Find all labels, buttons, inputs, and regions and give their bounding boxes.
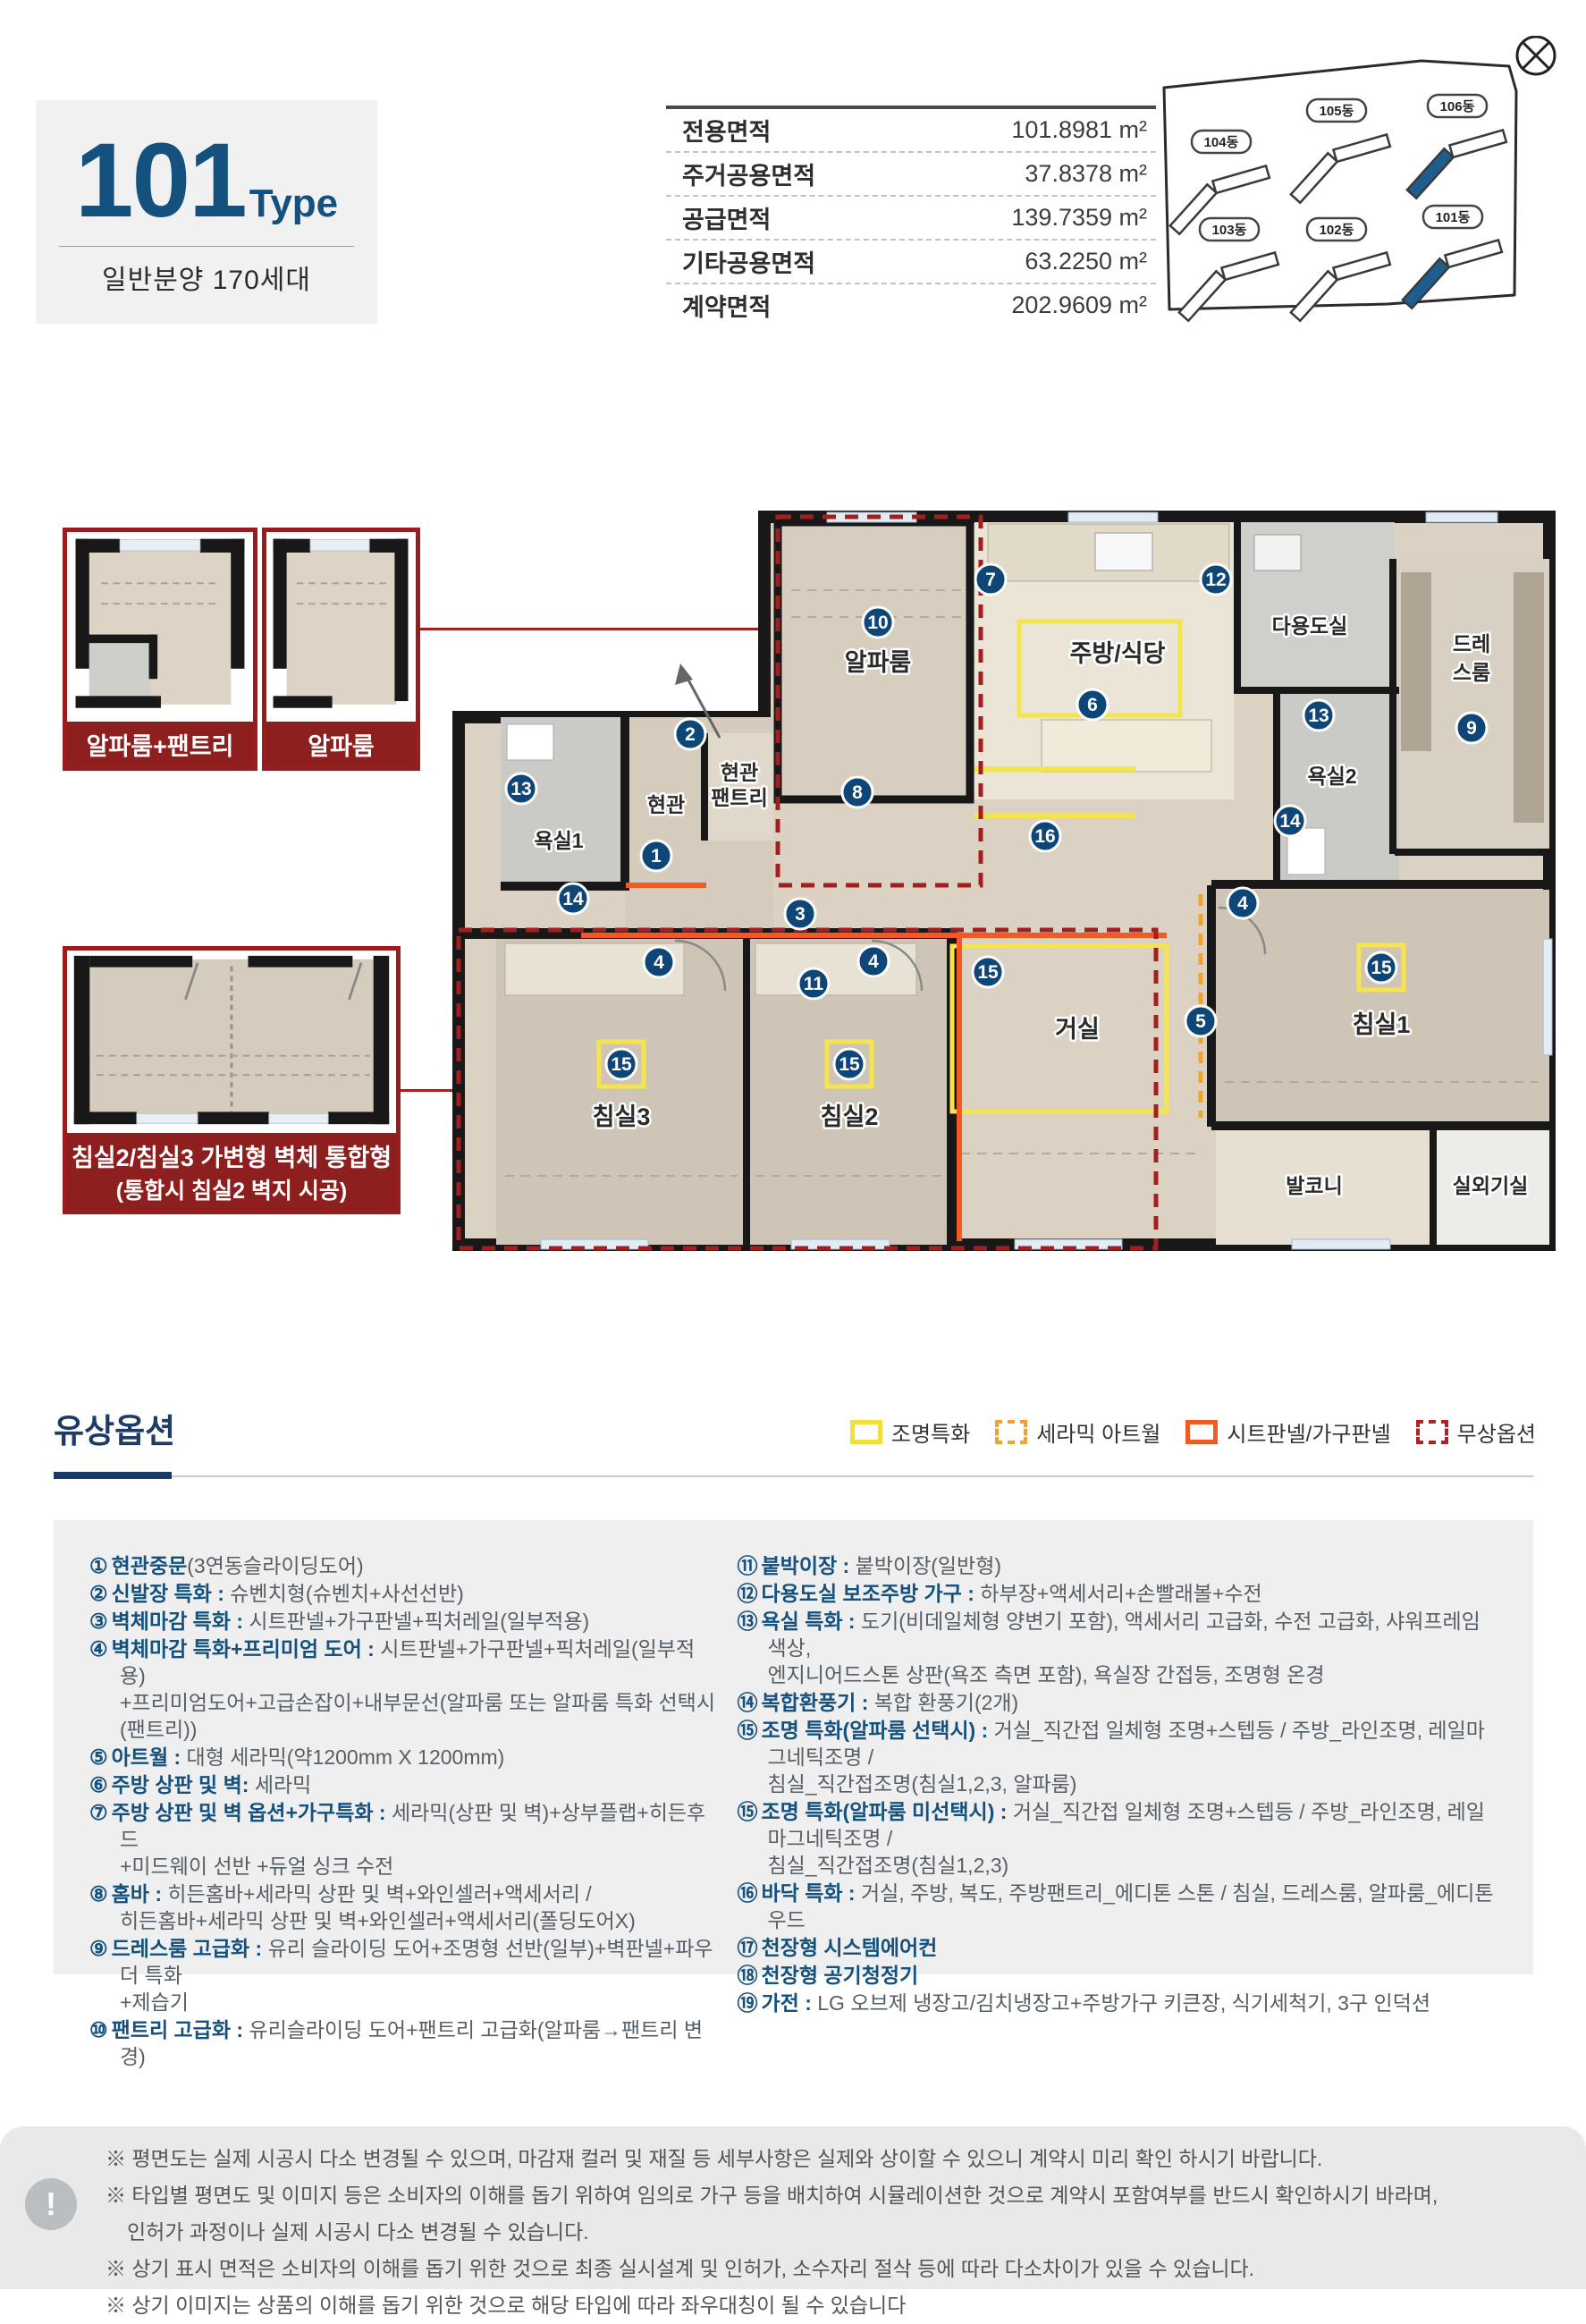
disclaimer-line: ※ 타입별 평면도 및 이미지 등은 소비자의 이해를 돕기 위하여 임의로 가…	[105, 2177, 1438, 2214]
svg-text:15: 15	[611, 1054, 632, 1075]
option-marker-10: 10	[863, 607, 893, 638]
building-label: 104동	[1204, 135, 1239, 150]
option-marker-14: 14	[1275, 806, 1305, 836]
building-label: 106동	[1440, 99, 1475, 114]
option-item: ⑯바닥 특화 : 거실, 주방, 복도, 주방팬트리_에디톤 스톤 / 침실, …	[738, 1880, 1498, 1933]
legend-item: 시트판넬/가구판넬	[1185, 1416, 1390, 1448]
paid-options-panel: ①현관중문(3연동슬라이딩도어) ②신발장 특화 : 슈벤치형(슈벤치+사선선반…	[54, 1520, 1533, 1974]
table-row: 기타공용면적 63.2250 m²	[666, 241, 1156, 284]
dressroom-wardrobe	[1401, 572, 1431, 751]
alert-icon: !	[25, 2178, 77, 2230]
variant-bed2-bed3-combined: 침실2/침실3 가변형 벽체 통합형 (통합시 침실2 벽지 시공)	[63, 946, 401, 1214]
table-row: 전용면적 101.8981 m²	[666, 109, 1156, 153]
area-label: 전용면적	[682, 113, 771, 148]
room-label-outdoor-unit: 실외기실	[1453, 1174, 1529, 1197]
option-marker-5: 5	[1185, 1006, 1216, 1036]
disclaimer-notes: ※ 평면도는 실제 시공시 다소 변경될 수 있으며, 마감재 컬러 및 재질 …	[105, 2141, 1438, 2324]
option-item: ⑥주방 상판 및 벽: 세라믹	[89, 1771, 720, 1798]
area-value: 63.2250 m²	[1025, 248, 1147, 275]
option-marker-13: 13	[1303, 700, 1334, 731]
option-item: ①현관중문(3연동슬라이딩도어)	[89, 1552, 720, 1579]
area-value: 101.8981 m²	[1011, 116, 1147, 144]
room-label-dressroom: 드레	[1453, 632, 1490, 655]
legend-item: 세라믹 아트월	[995, 1416, 1160, 1448]
legend-label: 세라믹 아트월	[1036, 1416, 1160, 1448]
option-marker-16: 16	[1030, 821, 1060, 851]
variant-caption: 알파룸	[266, 722, 416, 766]
unit-type-suffix: Type	[249, 182, 338, 226]
option-marker-14: 14	[558, 883, 588, 914]
building-label: 105동	[1320, 104, 1354, 119]
unit-type-card: 101 Type 일반분양 170세대	[36, 100, 377, 324]
option-item: ⑫다용도실 보조주방 가구 : 하부장+액세서리+손빨래볼+수전	[738, 1580, 1498, 1607]
variant-sketch	[67, 951, 396, 1133]
option-item: ⑭복합환풍기 : 복합 환풍기(2개)	[738, 1689, 1498, 1716]
room-label-utility: 다용도실	[1272, 614, 1348, 638]
option-marker-15: 15	[973, 957, 1003, 987]
room-label-alpha: 알파룸	[845, 649, 912, 676]
unit-type-number: 101	[75, 128, 246, 233]
option-item: ⑩팬트리 고급화 : 유리슬라이딩 도어+팬트리 고급화(알파룸→팬트리 변경)	[89, 2016, 720, 2070]
svg-text:1: 1	[651, 846, 662, 866]
option-item: ⑬욕실 특화 : 도기(비데일체형 양변기 포함), 액세서리 고급화, 수전 …	[738, 1608, 1498, 1688]
svg-text:9: 9	[1466, 718, 1477, 739]
area-label: 기타공용면적	[682, 244, 815, 279]
building-label: 102동	[1320, 223, 1354, 238]
disclaimer-line: 인허가 과정이나 실제 시공시 다소 변경될 수 있습니다.	[105, 2214, 1438, 2251]
divider	[54, 1475, 1533, 1477]
variant-alpha: 알파룸	[262, 528, 420, 771]
table-row: 계약면적 202.9609 m²	[666, 284, 1156, 326]
svg-text:5: 5	[1195, 1011, 1206, 1032]
area-value: 139.7359 m²	[1011, 204, 1147, 232]
area-table: 전용면적 101.8981 m² 주거공용면적 37.8378 m² 공급면적 …	[666, 106, 1156, 326]
variant-sketch	[266, 532, 416, 722]
area-label: 주거공용면적	[682, 156, 815, 191]
legend-label: 시트판넬/가구판넬	[1227, 1416, 1390, 1448]
svg-text:14: 14	[562, 889, 584, 909]
bed2-wardrobe	[755, 943, 916, 995]
unit-type-title: 101 Type	[75, 128, 338, 233]
legend-label: 조명특화	[891, 1416, 970, 1448]
floorplan-brochure-page: { "header": { "type_number": "101", "typ…	[0, 0, 1586, 2289]
svg-text:15: 15	[977, 962, 999, 983]
room-label-bath2: 욕실2	[1307, 765, 1356, 788]
option-item: ⑨드레스룸 고급화 : 유리 슬라이딩 도어+조명형 선반(일부)+벽판넬+파우…	[89, 1935, 720, 2016]
table-row: 공급면적 139.7359 m²	[666, 197, 1156, 241]
sale-units-subtitle: 일반분양 170세대	[102, 258, 311, 297]
svg-text:2: 2	[685, 724, 696, 745]
svg-text:15: 15	[839, 1054, 860, 1075]
room-label-entry-pantry: 팬트리	[711, 786, 767, 809]
option-item: ⑤아트월 : 대형 세라믹(약1200mm X 1200mm)	[89, 1744, 720, 1770]
legend-label: 무상옵션	[1457, 1416, 1536, 1448]
svg-text:10: 10	[867, 613, 888, 633]
option-marker-4: 4	[1227, 888, 1258, 918]
svg-text:15: 15	[1371, 958, 1392, 978]
legend-swatch-lighting	[850, 1420, 882, 1444]
option-marker-4: 4	[644, 947, 674, 977]
building-label: 101동	[1436, 210, 1471, 225]
utility-sink	[1254, 535, 1301, 570]
area-value: 202.9609 m²	[1011, 292, 1147, 319]
room-label-bed1: 침실1	[1353, 1011, 1411, 1038]
legend-swatch-free-option	[1416, 1420, 1448, 1444]
bed1-floor	[1216, 890, 1549, 1122]
option-item: ⑰천장형 시스템에어컨	[738, 1934, 1498, 1961]
variant-caption-line2: (통합시 침실2 벽지 시공)	[116, 1173, 347, 1205]
site-key-plan: 104동 105동 106동 103동 102동	[1153, 36, 1565, 340]
divider-accent	[54, 1472, 172, 1479]
option-marker-7: 7	[975, 564, 1006, 595]
dressroom-wardrobe	[1514, 572, 1544, 823]
svg-text:12: 12	[1205, 570, 1226, 590]
floorplan-legend: 조명특화 세라믹 아트월 시트판넬/가구판넬 무상옵션	[850, 1416, 1536, 1448]
kitchen-island	[1042, 720, 1211, 772]
option-item: ⑲가전 : LG 오브제 냉장고/김치냉장고+주방가구 키큰장, 식기세척기, …	[738, 1990, 1498, 2016]
option-item: ⑱천장형 공기청정기	[738, 1962, 1498, 1989]
room-label-dressroom: 스룸	[1453, 661, 1490, 684]
svg-text:13: 13	[510, 779, 531, 799]
options-column-right: ⑪붙박이장 : 붙박이장(일반형) ⑫다용도실 보조주방 가구 : 하부장+액세…	[738, 1552, 1498, 1942]
option-marker-12: 12	[1201, 564, 1231, 595]
svg-text:13: 13	[1308, 706, 1329, 726]
legend-item: 무상옵션	[1416, 1416, 1536, 1448]
svg-text:6: 6	[1087, 695, 1098, 715]
option-marker-13: 13	[506, 773, 536, 804]
compass-icon	[1517, 37, 1555, 74]
kitchen-sink	[1095, 533, 1152, 570]
option-marker-1: 1	[641, 841, 671, 871]
main-floor-plan: 현관 현관 팬트리 욕실1 알파룸 주방/식당 다용도실 드레 스룸 욕실2 거…	[451, 510, 1556, 1252]
option-item: ②신발장 특화 : 슈벤치형(슈벤치+사선선반)	[89, 1580, 720, 1607]
room-label-bed2: 침실2	[821, 1103, 879, 1130]
variant-caption: 침실2/침실3 가변형 벽체 통합형 (통합시 침실2 벽지 시공)	[67, 1133, 396, 1210]
variant-sketch	[67, 532, 253, 722]
area-label: 공급면적	[682, 200, 771, 235]
divider	[59, 246, 354, 247]
option-marker-2: 2	[675, 719, 705, 749]
option-item: ⑮조명 특화(알파룸 미선택시) : 거실_직간접 일체형 조명+스텝등 / 주…	[738, 1798, 1498, 1879]
option-marker-9: 9	[1456, 713, 1487, 743]
svg-text:7: 7	[985, 570, 996, 590]
room-label-kitchen: 주방/식당	[1070, 640, 1166, 667]
option-marker-4: 4	[858, 946, 889, 976]
svg-text:14: 14	[1279, 811, 1301, 832]
svg-text:11: 11	[804, 974, 824, 994]
svg-text:8: 8	[852, 782, 863, 803]
room-label-entry-pantry: 현관	[721, 761, 758, 784]
room-label-living: 거실	[1055, 1016, 1100, 1043]
room-label-bed3: 침실3	[593, 1103, 651, 1130]
option-item: ⑮조명 특화(알파룸 선택시) : 거실_직간접 일체형 조명+스텝등 / 주방…	[738, 1717, 1498, 1797]
area-value: 37.8378 m²	[1025, 160, 1147, 188]
variant-caption-line1: 침실2/침실3 가변형 벽체 통합형	[72, 1138, 392, 1173]
disclaimer-line: ※ 평면도는 실제 시공시 다소 변경될 수 있으며, 마감재 컬러 및 재질 …	[105, 2141, 1438, 2177]
variant-alpha-pantry: 알파룸+팬트리	[63, 528, 257, 771]
svg-text:4: 4	[868, 951, 879, 972]
paid-options-title: 유상옵션	[54, 1404, 175, 1452]
option-marker-6: 6	[1077, 689, 1108, 720]
option-marker-3: 3	[785, 899, 815, 929]
option-item: ⑪붙박이장 : 붙박이장(일반형)	[738, 1552, 1498, 1579]
room-label-entry: 현관	[647, 793, 685, 816]
svg-text:4: 4	[654, 952, 664, 973]
legend-swatch-ceramic-artwall	[995, 1420, 1027, 1444]
disclaimer-line: ※ 상기 이미지는 상품의 이해를 돕기 위한 것으로 해당 타입에 따라 좌우…	[105, 2287, 1438, 2324]
disclaimer-line: ※ 상기 표시 면적은 소비자의 이해를 돕기 위한 것으로 최종 실시설계 및…	[105, 2251, 1438, 2287]
area-label: 계약면적	[682, 288, 771, 323]
option-item: ③벽체마감 특화 : 시트판넬+가구판넬+픽처레일(일부적용)	[89, 1608, 720, 1635]
variant-caption: 알파룸+팬트리	[67, 722, 253, 766]
table-row: 주거공용면적 37.8378 m²	[666, 153, 1156, 197]
option-marker-11: 11	[798, 968, 829, 999]
svg-text:4: 4	[1237, 893, 1248, 914]
svg-text:16: 16	[1034, 826, 1055, 847]
options-column-left: ①현관중문(3연동슬라이딩도어) ②신발장 특화 : 슈벤치형(슈벤치+사선선반…	[89, 1552, 738, 1942]
room-label-balcony: 발코니	[1286, 1174, 1342, 1197]
room-label-bath1: 욕실1	[534, 829, 583, 852]
option-item: ⑦주방 상판 및 벽 옵션+가구특화 : 세라믹(상판 및 벽)+상부플랩+히든…	[89, 1799, 720, 1880]
legend-swatch-sheet-panel	[1185, 1420, 1218, 1444]
bath1-fixture	[507, 724, 553, 760]
svg-text:3: 3	[795, 904, 806, 925]
option-marker-8: 8	[842, 777, 873, 807]
option-item: ⑧홈바 : 히든홈바+세라믹 상판 및 벽+와인셀러+액세서리 / 히든홈바+세…	[89, 1880, 720, 1934]
option-item: ④벽체마감 특화+프리미엄 도어 : 시트판넬+가구판넬+픽처레일(일부적용) …	[89, 1635, 720, 1743]
building-label: 103동	[1212, 223, 1247, 238]
legend-item: 조명특화	[850, 1416, 970, 1448]
